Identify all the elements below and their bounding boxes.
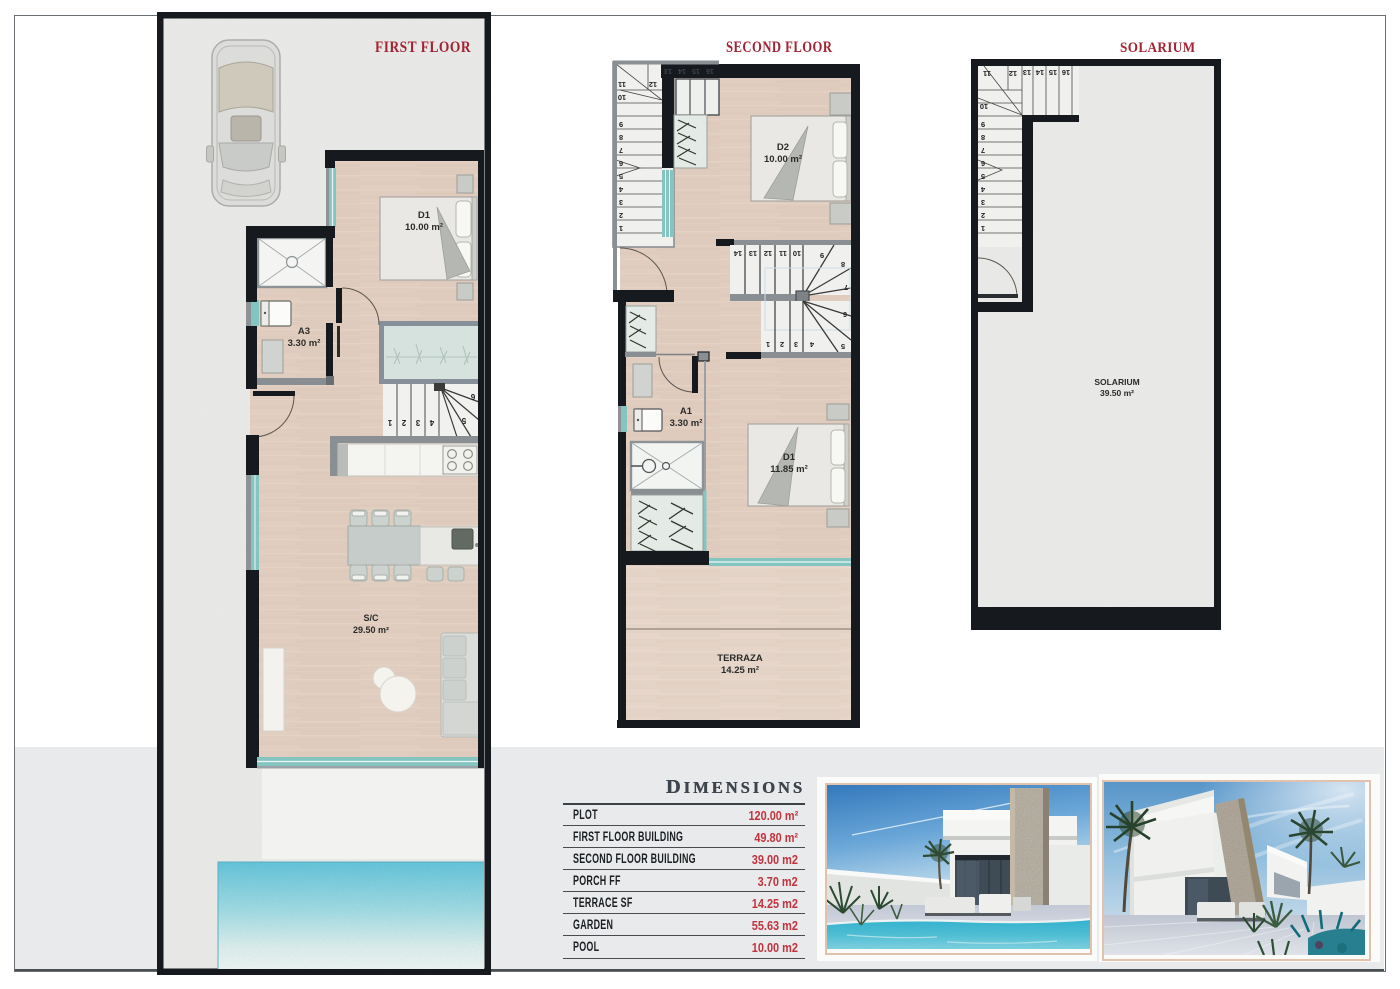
svg-text:SOLARIUM: SOLARIUM — [1094, 377, 1139, 387]
svg-text:5: 5 — [981, 172, 985, 181]
svg-text:A3: A3 — [298, 326, 310, 337]
svg-text:6: 6 — [981, 159, 985, 168]
svg-text:14: 14 — [733, 249, 742, 258]
svg-text:6: 6 — [843, 310, 847, 319]
svg-text:9: 9 — [981, 120, 985, 129]
svg-text:2: 2 — [401, 418, 406, 427]
svg-text:12: 12 — [764, 249, 772, 258]
svg-text:11.85 m²: 11.85 m² — [770, 464, 808, 475]
svg-text:1: 1 — [619, 224, 623, 233]
svg-text:16: 16 — [1062, 68, 1070, 77]
svg-text:A1: A1 — [680, 406, 693, 417]
svg-text:2: 2 — [619, 211, 623, 220]
svg-text:5: 5 — [461, 416, 466, 425]
svg-text:14.25 m²: 14.25 m² — [721, 665, 759, 676]
svg-text:3: 3 — [794, 340, 798, 349]
svg-text:15: 15 — [1049, 68, 1057, 77]
svg-text:11: 11 — [618, 80, 626, 89]
svg-text:12: 12 — [649, 80, 657, 89]
svg-text:7: 7 — [619, 146, 623, 155]
svg-text:D1: D1 — [418, 210, 431, 221]
svg-text:D1: D1 — [783, 452, 796, 463]
svg-text:10.00 m²: 10.00 m² — [405, 222, 443, 233]
svg-text:5: 5 — [841, 342, 845, 351]
svg-text:3.30 m²: 3.30 m² — [670, 418, 703, 429]
svg-text:3.30 m²: 3.30 m² — [288, 338, 321, 349]
svg-text:3: 3 — [981, 198, 985, 207]
svg-text:7: 7 — [981, 146, 985, 155]
svg-text:1: 1 — [766, 340, 770, 349]
svg-text:4: 4 — [429, 418, 434, 427]
svg-text:29.50 m²: 29.50 m² — [353, 625, 389, 635]
svg-text:11: 11 — [779, 249, 787, 258]
svg-text:13: 13 — [1023, 68, 1031, 77]
svg-text:16: 16 — [706, 67, 714, 74]
svg-text:6: 6 — [470, 392, 475, 401]
svg-text:8: 8 — [619, 133, 623, 142]
svg-text:15: 15 — [692, 67, 700, 74]
svg-text:TERRAZA: TERRAZA — [717, 653, 763, 664]
svg-text:5: 5 — [619, 172, 623, 181]
svg-text:6: 6 — [619, 159, 623, 168]
svg-text:39.50 m²: 39.50 m² — [1100, 388, 1134, 398]
svg-text:14: 14 — [1035, 68, 1044, 77]
svg-text:D2: D2 — [777, 142, 789, 153]
svg-text:9: 9 — [820, 251, 824, 260]
svg-text:10: 10 — [618, 93, 626, 102]
svg-text:11: 11 — [983, 69, 991, 78]
svg-text:10.00 m²: 10.00 m² — [764, 154, 802, 165]
svg-text:2: 2 — [981, 211, 985, 220]
svg-text:10: 10 — [793, 249, 801, 258]
svg-text:1: 1 — [981, 224, 985, 233]
svg-text:9: 9 — [619, 120, 623, 129]
svg-text:8: 8 — [981, 133, 985, 142]
svg-text:2: 2 — [780, 340, 784, 349]
svg-text:3: 3 — [619, 198, 623, 207]
svg-text:14: 14 — [678, 67, 686, 74]
svg-text:7: 7 — [844, 283, 848, 292]
svg-text:S/C: S/C — [363, 613, 379, 623]
svg-text:13: 13 — [749, 249, 757, 258]
svg-text:13: 13 — [664, 67, 672, 74]
svg-text:12: 12 — [1009, 69, 1017, 78]
svg-text:1: 1 — [387, 418, 392, 427]
svg-text:3: 3 — [415, 418, 420, 427]
svg-text:10: 10 — [980, 102, 988, 111]
